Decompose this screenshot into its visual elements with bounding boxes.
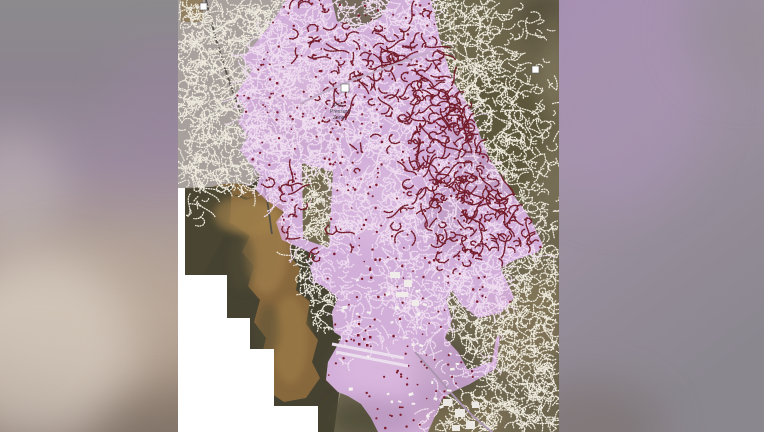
svg-text:Zone: Zone — [333, 115, 345, 121]
